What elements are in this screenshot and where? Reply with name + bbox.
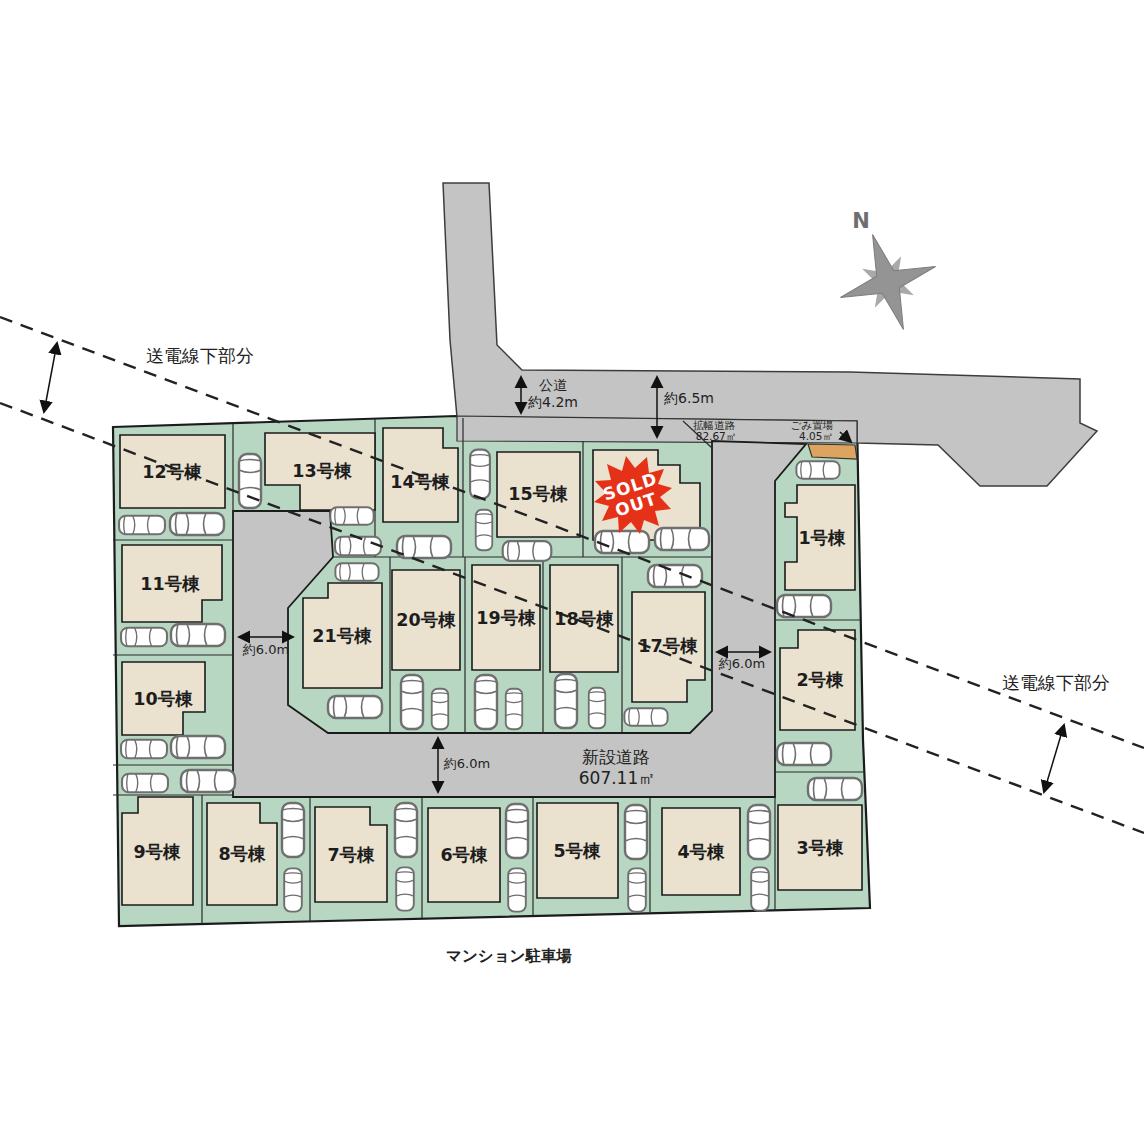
building-2-label: 2号棟	[796, 670, 844, 690]
building-11-label: 11号棟	[140, 574, 200, 594]
car-icon	[508, 868, 526, 911]
car-icon	[282, 803, 304, 857]
building-6-label: 6号棟	[440, 845, 488, 865]
road-width-bottom: 約6.0m	[443, 756, 490, 771]
garbage-station-area: 4.05㎡	[799, 430, 833, 442]
building-19-label: 19号棟	[476, 608, 536, 628]
car-icon	[506, 689, 523, 730]
car-icon	[335, 537, 381, 556]
building-3-label: 3号棟	[796, 838, 844, 858]
transmission-label-left: 送電線下部分	[146, 345, 254, 366]
site-plan-canvas: 送電線下部分 送電線下部分 公道 約4.2m 約6.5m 拡幅道路 82.67㎡…	[0, 0, 1144, 1122]
widened-road-area: 82.67㎡	[696, 430, 737, 442]
car-icon	[555, 674, 577, 728]
car-icon	[401, 675, 423, 729]
compass-star	[825, 219, 951, 345]
car-icon	[171, 624, 225, 646]
car-icon	[470, 450, 490, 499]
building-7-label: 7号棟	[327, 845, 375, 865]
garbage-station	[808, 444, 857, 459]
car-icon	[284, 868, 302, 911]
car-icon	[335, 563, 378, 581]
car-icon	[777, 743, 831, 765]
car-icon	[330, 507, 373, 525]
car-icon	[796, 461, 839, 479]
car-icon	[748, 805, 770, 859]
building-13-label: 13号棟	[292, 461, 352, 481]
building-20-label: 20号棟	[396, 610, 456, 630]
car-icon	[432, 689, 449, 730]
car-icon	[181, 770, 235, 792]
building-15-label: 15号棟	[508, 484, 568, 504]
car-icon	[655, 528, 709, 550]
car-icon	[628, 868, 646, 911]
compass-rose: N	[825, 209, 951, 345]
car-icon	[122, 774, 168, 793]
car-icon	[595, 531, 649, 553]
car-icon	[121, 628, 167, 647]
building-1-label: 1号棟	[798, 528, 846, 548]
car-icon	[121, 740, 167, 759]
building-18-label: 18号棟	[554, 609, 614, 629]
car-icon	[648, 565, 702, 587]
building-4-label: 4号棟	[677, 842, 725, 862]
new-road-label: 新設道路	[582, 747, 650, 767]
car-icon	[328, 696, 382, 718]
building-10-label: 10号棟	[133, 689, 193, 709]
transmission-label-right: 送電線下部分	[1002, 672, 1110, 693]
car-icon	[751, 867, 769, 910]
car-icon	[506, 804, 528, 858]
compass-north-label: N	[852, 209, 870, 233]
car-icon	[503, 541, 552, 561]
car-icon	[396, 867, 414, 910]
building-8-label: 8号棟	[218, 844, 266, 864]
building-9-label: 9号棟	[133, 842, 181, 862]
building-21-label: 21号棟	[312, 626, 372, 646]
building-17-label: 17号棟	[638, 636, 698, 656]
site-plan: 送電線下部分 送電線下部分 公道 約4.2m 約6.5m 拡幅道路 82.67㎡…	[0, 0, 1144, 1122]
public-road-width: 約4.2m	[528, 394, 578, 410]
car-icon	[395, 803, 417, 857]
car-icon	[476, 510, 493, 551]
building-5-label: 5号棟	[553, 841, 601, 861]
car-icon	[624, 708, 667, 726]
car-icon	[171, 736, 225, 758]
car-icon	[170, 513, 224, 535]
road-width-left: 約6.0m	[242, 642, 289, 657]
road-width-right: 約6.0m	[718, 656, 765, 671]
mansion-parking-label: マンション駐車場	[446, 947, 572, 965]
car-icon	[475, 675, 497, 729]
car-icon	[589, 688, 606, 729]
public-road-label: 公道	[539, 377, 567, 393]
car-icon	[397, 536, 451, 558]
car-icon	[625, 805, 647, 859]
total-frontage-width: 約6.5m	[664, 390, 714, 406]
car-icon	[119, 516, 165, 535]
building-14-label: 14号棟	[390, 472, 450, 492]
building-12-label: 12号棟	[142, 462, 202, 482]
car-icon	[808, 778, 862, 800]
new-road-area: 607.11㎡	[579, 768, 655, 788]
